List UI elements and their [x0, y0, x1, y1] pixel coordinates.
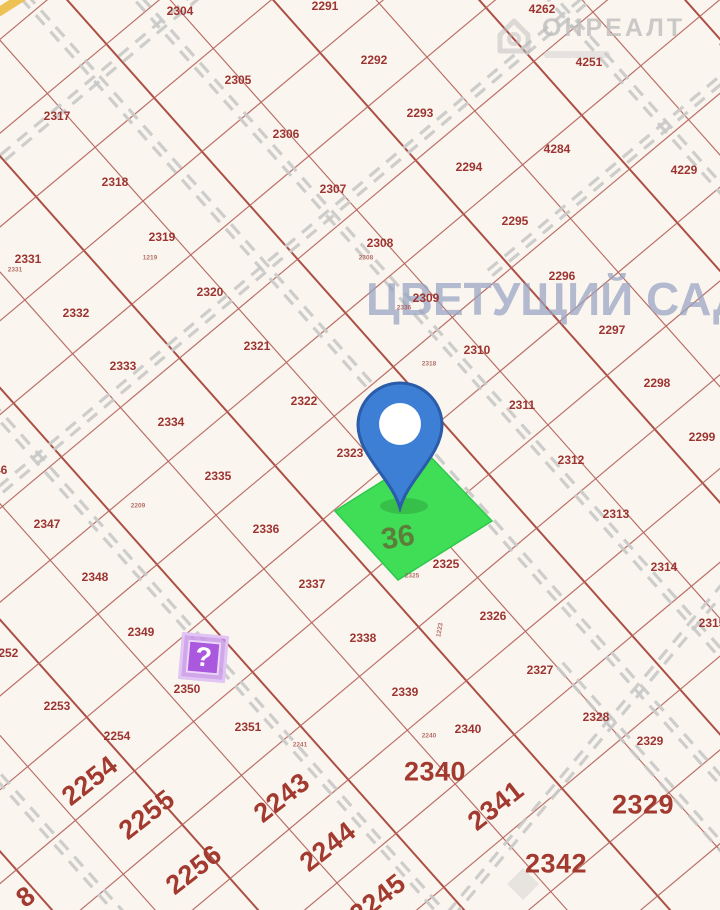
- house-icon: [494, 14, 534, 60]
- district-watermark: ЦВЕТУЩИЙ САД: [366, 272, 720, 326]
- logo-text: ОНРЕАЛТ: [542, 14, 685, 43]
- map-canvas[interactable]: ЦВЕТУЩИЙ САД 230422914262422292425123172…: [0, 0, 720, 910]
- unknown-parcel-icon[interactable]: ?: [178, 632, 229, 683]
- logo-subtext: [544, 51, 610, 58]
- question-mark-icon: ?: [186, 640, 222, 676]
- location-pin-icon[interactable]: [350, 376, 450, 512]
- onrealt-watermark: ОНРЕАЛТ: [494, 14, 685, 60]
- selected-parcel-number: 36: [379, 519, 417, 558]
